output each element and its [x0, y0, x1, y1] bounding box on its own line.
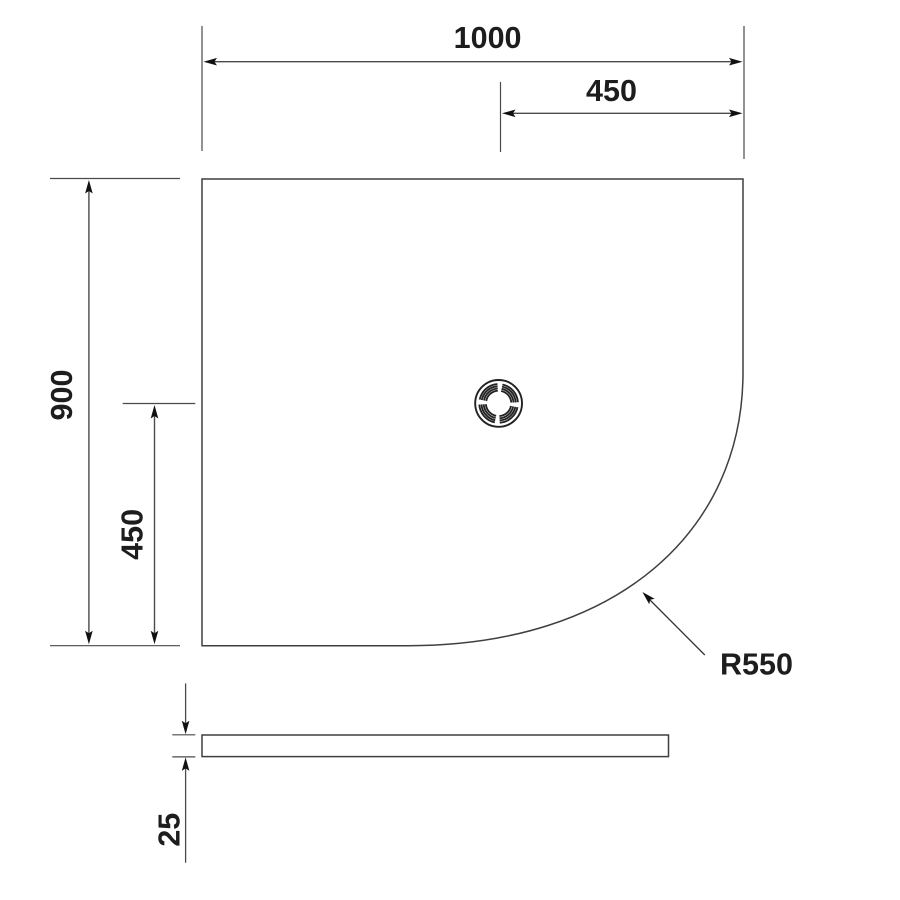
svg-text:25: 25 — [152, 813, 186, 847]
svg-text:450: 450 — [586, 74, 637, 108]
svg-text:R550: R550 — [720, 648, 793, 682]
svg-text:900: 900 — [45, 370, 79, 421]
svg-text:450: 450 — [116, 509, 150, 560]
svg-text:1000: 1000 — [454, 21, 522, 55]
